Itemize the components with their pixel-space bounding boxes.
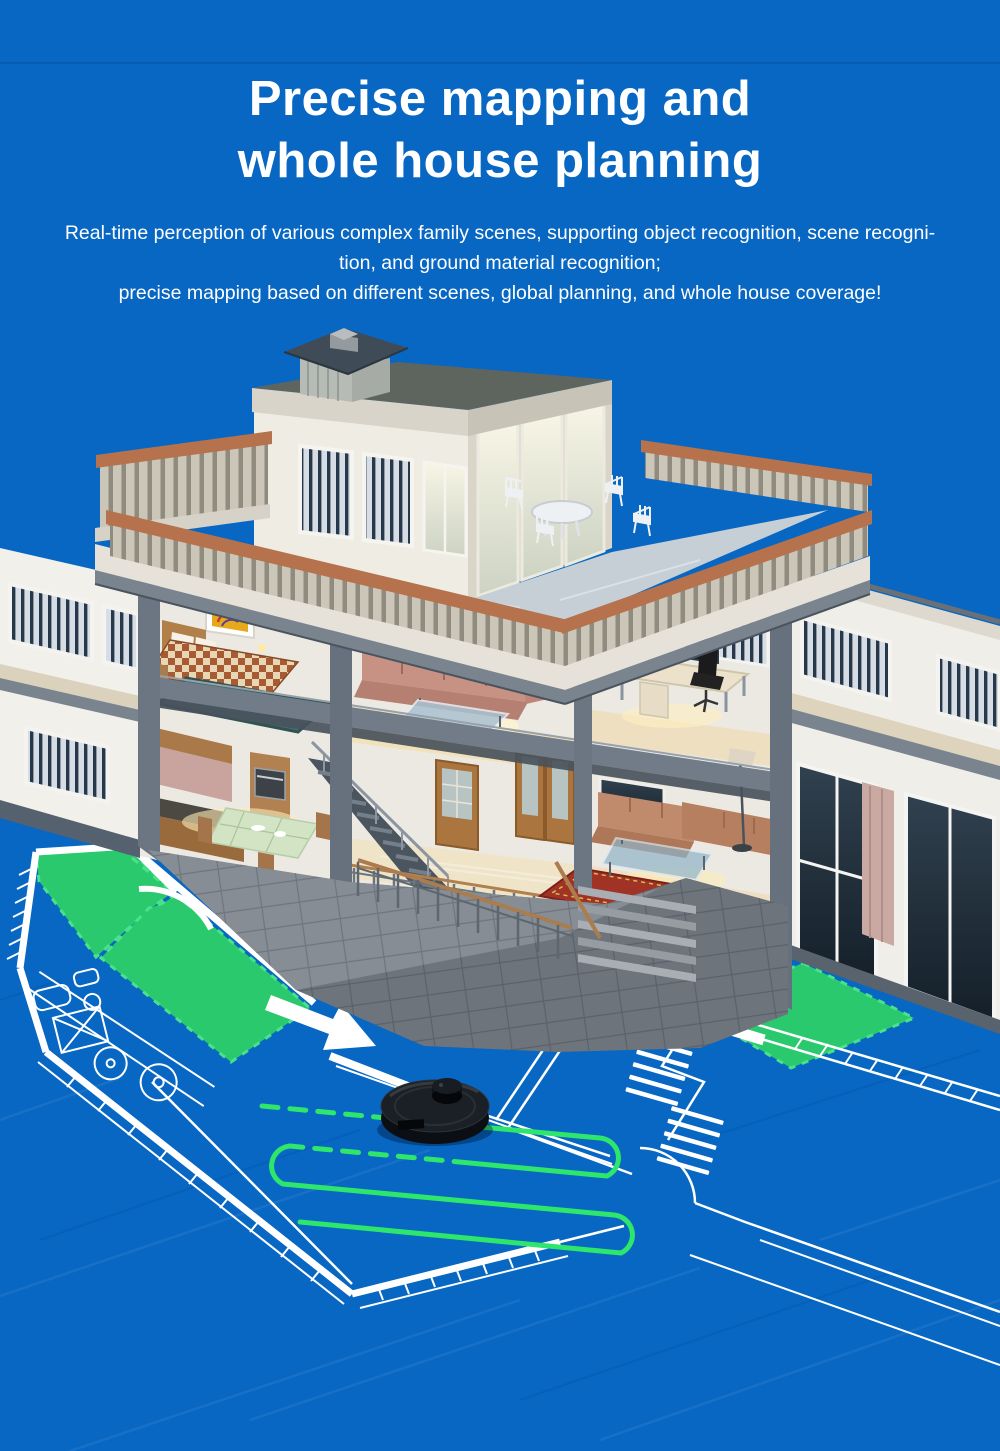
curtain [862, 782, 894, 946]
title-line-1: Precise mapping and [0, 68, 1000, 130]
title-line-2: whole house planning [0, 130, 1000, 192]
window-blinds-icon [104, 606, 138, 670]
description: Real-time perception of various complex … [20, 218, 980, 308]
header-seam-line [0, 62, 1000, 64]
product-banner: Precise mapping and whole house planning… [0, 0, 1000, 1451]
chimney [284, 328, 408, 402]
desk-drawers [640, 682, 668, 718]
banner-header: Precise mapping and whole house planning… [0, 68, 1000, 308]
description-line-1: Real-time perception of various complex … [20, 218, 980, 248]
oven-icon [255, 768, 285, 800]
left-wing [0, 548, 140, 858]
window-blinds-icon [364, 454, 412, 546]
window-blinds-icon [300, 446, 352, 538]
page-title: Precise mapping and whole house planning [0, 68, 1000, 192]
right-wing [788, 564, 1000, 1034]
description-line-3: precise mapping based on different scene… [20, 278, 980, 308]
robot-vacuum [377, 1078, 493, 1146]
description-line-2: tion, and ground material recognition; [20, 248, 980, 278]
